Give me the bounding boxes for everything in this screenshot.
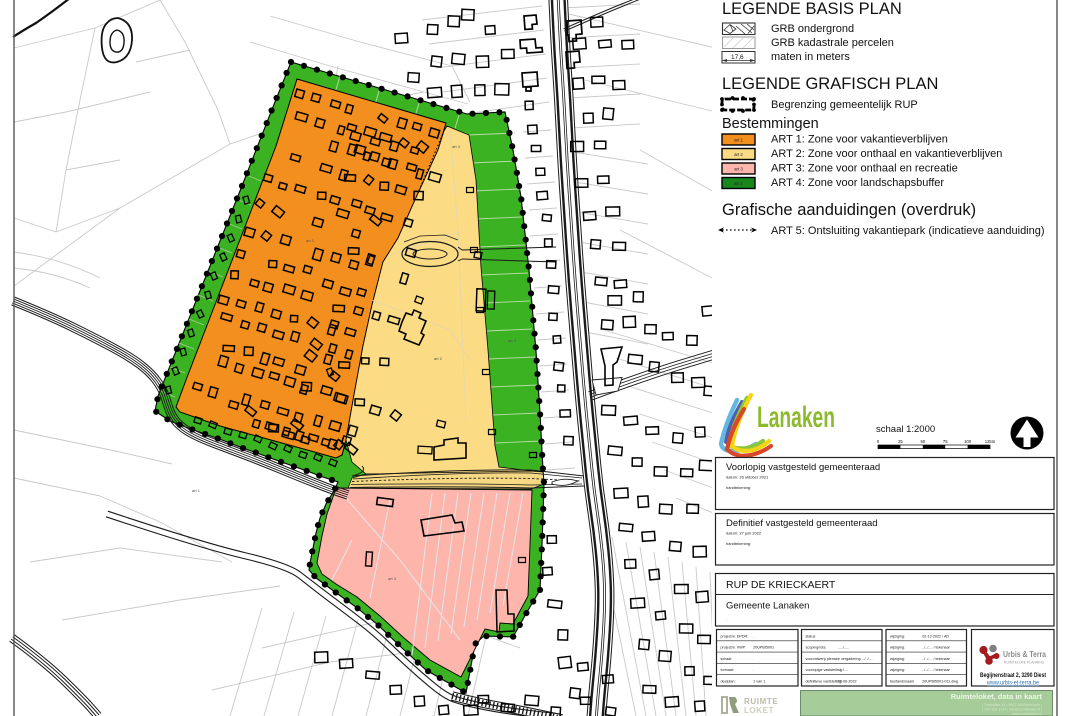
- svg-text:LEGENDE GRAFISCH PLAN: LEGENDE GRAFISCH PLAN: [722, 75, 938, 93]
- svg-text:Urbis & Terra: Urbis & Terra: [1003, 650, 1046, 659]
- svg-text:Begrenzing gemeentelijk RUP: Begrenzing gemeentelijk RUP: [771, 99, 918, 111]
- svg-text:20UPBI5001: 20UPBI5001: [753, 646, 774, 650]
- svg-text:wijziging:: wijziging:: [890, 646, 905, 650]
- svg-text:.: .: [753, 634, 754, 638]
- svg-text:| 040 294 1234 | info: | 040 294 1234 | info@ruimteloket.nl |: [982, 708, 1042, 712]
- svg-text:ART 2: Zone voor onthaal en va: ART 2: Zone voor onthaal en vakantieverb…: [771, 148, 1002, 160]
- svg-text:25: 25: [898, 439, 903, 444]
- svg-text:handtekening:: handtekening:: [726, 541, 751, 546]
- svg-text:Bestemmingen: Bestemmingen: [722, 116, 819, 132]
- svg-text:17,6: 17,6: [731, 54, 744, 61]
- svg-text:Grafische aanduidingen (overdr: Grafische aanduidingen (overdruk): [722, 201, 976, 219]
- svg-text:Ruimteloket, data in kaart: Ruimteloket, data in kaart: [951, 692, 1043, 701]
- svg-text:maten in meters: maten in meters: [771, 51, 850, 63]
- svg-text:ART 4: Zone voor landschapsbuf: ART 4: Zone voor landschapsbuffer: [771, 177, 944, 189]
- svg-text:Lanaken: Lanaken: [757, 401, 835, 434]
- svg-text:art 2: art 2: [434, 356, 443, 361]
- svg-text:art 3: art 3: [734, 166, 743, 171]
- svg-text:ART 3: Zone voor onthaal en re: ART 3: Zone voor onthaal en recreatie: [771, 163, 958, 175]
- svg-text:../../.... / tekenaar: ../../.... / tekenaar: [922, 657, 950, 661]
- svg-text:definitieve vaststelling: definitieve vaststelling: [806, 680, 842, 684]
- svg-text:scopingnota:: scopingnota:: [806, 646, 827, 650]
- svg-text:art 1: art 1: [306, 238, 315, 243]
- svg-text:art 3: art 3: [388, 576, 397, 581]
- svg-text:www.urbis-et-terra.be: www.urbis-et-terra.be: [986, 680, 1039, 687]
- svg-text:voorontwerp plenaire vergaderi: voorontwerp plenaire vergadering: ../../…: [806, 657, 873, 661]
- svg-text:wijziging:: wijziging:: [890, 657, 905, 661]
- svg-text:.: .: [726, 617, 727, 622]
- svg-text:../../.... / tekenaar: ../../.... / tekenaar: [922, 668, 950, 672]
- svg-text:125m: 125m: [985, 439, 996, 444]
- svg-text:status: status: [806, 634, 816, 638]
- svg-text:deelplan:: deelplan:: [721, 680, 736, 684]
- svg-text:wijziging:: wijziging:: [890, 668, 905, 672]
- svg-text:datum: 26 oktober 2021: datum: 26 oktober 2021: [726, 475, 769, 480]
- svg-text:schaal 1:2000: schaal 1:2000: [876, 424, 935, 435]
- svg-text:1 van 1: 1 van 1: [753, 680, 765, 684]
- svg-text:Voorlopig vastgesteld gemeente: Voorlopig vastgesteld gemeenteraad: [726, 462, 880, 473]
- svg-text:RUIMTELIJKE PLANNING: RUIMTELIJKE PLANNING: [1004, 661, 1045, 665]
- svg-text:| Torenallee 45 | 561: | Torenallee 45 | 5617 BA Eindhoven |: [982, 703, 1042, 707]
- svg-text:.: .: [753, 668, 754, 672]
- svg-text:bestandsnaam: bestandsnaam: [890, 680, 914, 684]
- svg-text:RUP DE KRIECKAERT: RUP DE KRIECKAERT: [726, 579, 836, 591]
- svg-text:projectnr. VWP:: projectnr. VWP:: [721, 646, 747, 650]
- svg-text:02-12-2022 / AD: 02-12-2022 / AD: [922, 634, 949, 638]
- svg-text:Gemeente Lanaken: Gemeente Lanaken: [726, 601, 809, 612]
- svg-text:art 4: art 4: [452, 144, 461, 149]
- svg-text:...../.....: ...../.....: [838, 646, 849, 650]
- svg-text:art 1: art 1: [192, 488, 201, 493]
- svg-text:art 4: art 4: [508, 338, 517, 343]
- svg-text:LEGENDE BASIS PLAN: LEGENDE BASIS PLAN: [722, 0, 902, 18]
- svg-text:art 1: art 1: [734, 137, 743, 142]
- svg-text:projectnr. DPDR:: projectnr. DPDR:: [721, 634, 749, 638]
- svg-text:handtekening:: handtekening:: [726, 485, 751, 490]
- svg-text:datum: 27 juni 2022: datum: 27 juni 2022: [726, 531, 762, 536]
- svg-text:../../.... / tekenaar: ../../.... / tekenaar: [922, 646, 950, 650]
- svg-text:50: 50: [920, 439, 925, 444]
- svg-text:ART 5: Ontsluiting vakantiepar: ART 5: Ontsluiting vakantiepark (indicat…: [771, 225, 1045, 237]
- svg-text:ART 1: Zone voor vakantieverbl: ART 1: Zone voor vakantieverblijven: [771, 134, 948, 146]
- svg-text:28-06-2022: 28-06-2022: [838, 680, 857, 684]
- svg-text:www.ruimteloket.nl: www.ruimteloket.nl: [1012, 712, 1042, 716]
- svg-text:75: 75: [943, 439, 948, 444]
- svg-text:LOKET: LOKET: [744, 706, 774, 715]
- svg-text:art 2: art 2: [734, 152, 743, 157]
- svg-text:Definitief vastgesteld gemeent: Definitief vastgesteld gemeenteraad: [726, 518, 878, 529]
- svg-text:20UPBI5001-011.dwg: 20UPBI5001-011.dwg: [922, 680, 958, 684]
- svg-text:formaat:: formaat:: [721, 668, 735, 672]
- svg-text:.: .: [753, 657, 754, 661]
- svg-text:schaal:: schaal:: [721, 657, 733, 661]
- svg-text:GRB ondergrond: GRB ondergrond: [771, 23, 854, 35]
- svg-text:100: 100: [964, 439, 972, 444]
- svg-text:wijziging:: wijziging:: [890, 634, 905, 638]
- svg-text:../../....: ../../....: [838, 668, 848, 672]
- svg-text:RUIMTE: RUIMTE: [744, 697, 778, 706]
- svg-text:Begijnenstraat 2, 3290 Diest: Begijnenstraat 2, 3290 Diest: [980, 672, 1047, 679]
- svg-text:art 4: art 4: [734, 181, 743, 186]
- svg-text:GRB kadastrale percelen: GRB kadastrale percelen: [771, 37, 894, 49]
